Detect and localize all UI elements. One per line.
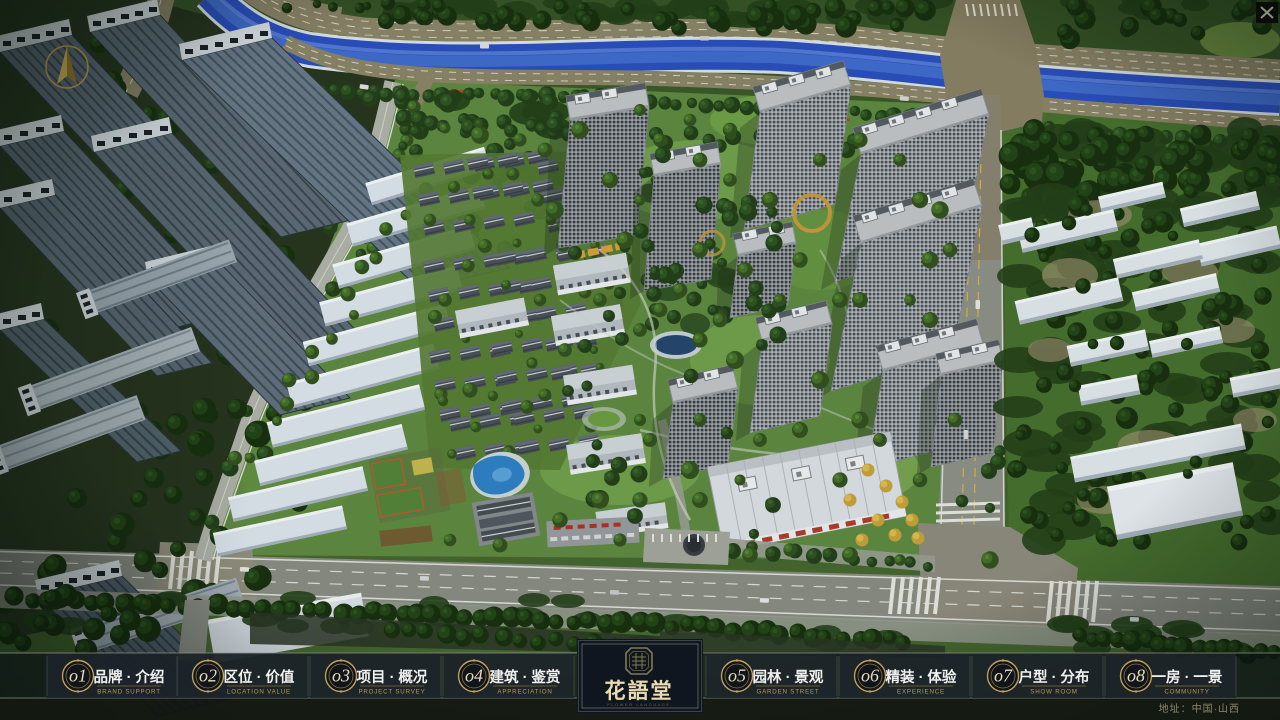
svg-text:o5: o5 [728,666,746,686]
svg-text:EXPERIENCE: EXPERIENCE [897,689,945,696]
svg-text:o2: o2 [199,666,217,686]
svg-text:品牌 · 介绍: 品牌 · 介绍 [94,668,165,686]
svg-text:BRAND SUPPORT: BRAND SUPPORT [97,689,161,696]
svg-text:o6: o6 [861,666,879,686]
svg-text:o3: o3 [332,666,350,686]
svg-text:LOCATION VALUE: LOCATION VALUE [227,689,291,696]
svg-text:o7: o7 [994,666,1013,686]
svg-text:FLOWER·LANGUAGE: FLOWER·LANGUAGE [607,702,670,707]
svg-text:园林 · 景观: 园林 · 景观 [753,668,824,686]
svg-text:一房 · 一景: 一房 · 一景 [1152,668,1223,686]
svg-text:o8: o8 [1127,666,1145,686]
svg-text:精装 · 体验: 精装 · 体验 [886,668,957,686]
svg-text:COMMUNITY: COMMUNITY [1164,689,1209,696]
svg-text:o4: o4 [465,666,483,686]
svg-text:区位 · 价值: 区位 · 价值 [224,668,295,686]
svg-text:花語堂: 花語堂 [605,679,674,703]
svg-text:地址：中国·山西: 地址：中国·山西 [1159,702,1240,715]
svg-text:项目 · 概况: 项目 · 概况 [357,668,428,686]
svg-text:SHOW ROOM: SHOW ROOM [1030,689,1077,696]
svg-text:APPRECIATION: APPRECIATION [497,689,552,696]
svg-text:GARDEN STREET: GARDEN STREET [757,689,820,696]
svg-text:o1: o1 [69,666,87,686]
svg-text:户型 · 分布: 户型 · 分布 [1019,668,1090,686]
svg-text:建筑 · 鉴赏: 建筑 · 鉴赏 [490,668,561,686]
svg-text:PROJECT SURVEY: PROJECT SURVEY [358,689,425,696]
